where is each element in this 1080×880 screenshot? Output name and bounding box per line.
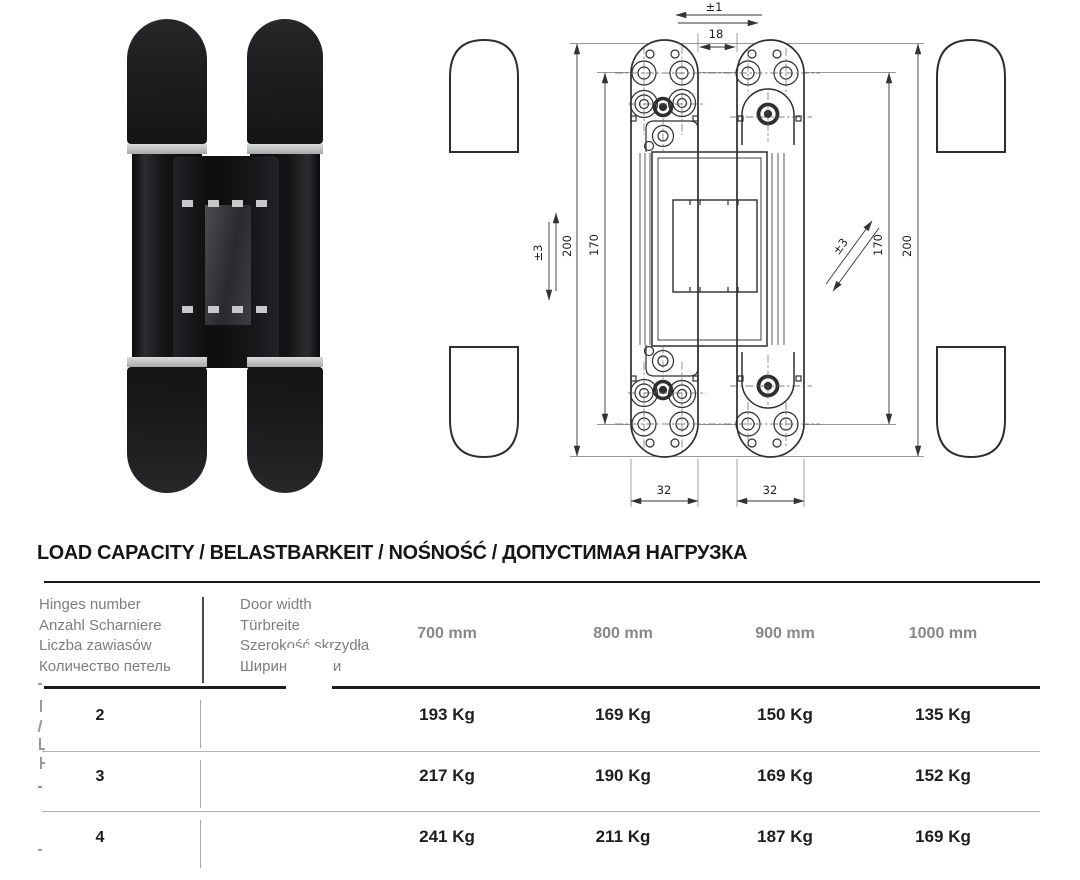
capacity-cell: 152 Kg <box>873 766 1013 786</box>
width-column-700: 700 mm <box>377 625 517 643</box>
dim-label-lateral-adjustment: ±1 <box>706 0 723 14</box>
clipped-text-fragment <box>38 720 43 732</box>
row-separator <box>42 811 1040 812</box>
hinges-count: 2 <box>40 707 160 725</box>
mounting-strip <box>127 144 207 154</box>
mounting-strip <box>127 357 207 367</box>
dim-label-vertical-adjustment: ±3 <box>531 245 545 262</box>
white-occlusion-box <box>286 648 332 704</box>
header-column-divider <box>202 597 204 683</box>
hinge-cap-top-left <box>127 19 207 144</box>
width-column-900: 900 mm <box>715 625 855 643</box>
mounting-strip <box>247 357 323 367</box>
capacity-cell: 187 Kg <box>715 827 855 847</box>
header-rule <box>44 686 1040 689</box>
hinge-cap-bottom-left <box>127 367 207 493</box>
clipped-text-fragment <box>38 683 42 685</box>
capacity-cell: 217 Kg <box>377 766 517 786</box>
capacity-cell: 135 Kg <box>873 705 1013 725</box>
row-divider <box>200 700 201 748</box>
capacity-cell: 150 Kg <box>715 705 855 725</box>
capacity-cell: 211 Kg <box>553 827 693 847</box>
hinges-number-header: Hinges number Anzahl Scharniere Liczba z… <box>39 595 171 677</box>
clipped-text-fragment <box>38 849 42 851</box>
clipped-text-fragment <box>40 700 42 712</box>
capacity-cell: 169 Kg <box>553 705 693 725</box>
title-rule <box>44 581 1040 583</box>
dim-label-right-total-height: 200 <box>900 235 914 257</box>
dim-label-left-plate-width: 32 <box>657 483 672 497</box>
product-photo <box>115 10 335 494</box>
capacity-cell: 169 Kg <box>715 766 855 786</box>
capacity-cell: 190 Kg <box>553 766 693 786</box>
hinge-cap-top-right <box>247 19 323 144</box>
clipped-text-fragment <box>42 762 45 764</box>
row-divider <box>200 820 201 868</box>
hinges-count: 3 <box>40 768 160 786</box>
capacity-cell: 169 Kg <box>873 827 1013 847</box>
dim-label-left-total-height: 200 <box>560 235 574 257</box>
mounting-strip <box>247 144 323 154</box>
hinge-cap-bottom-right <box>247 367 323 493</box>
load-capacity-section: LOAD CAPACITY / BELASTBARKEIT / NOŚNOŚĆ … <box>0 535 1080 880</box>
capacity-cell: 241 Kg <box>377 827 517 847</box>
dim-label-right-screw-spacing: 170 <box>871 234 885 256</box>
dim-label-left-screw-spacing: 170 <box>587 234 601 256</box>
row-separator <box>42 751 1040 752</box>
row-divider <box>200 760 201 808</box>
technical-drawing: ±1 18 ±3 200 170 ±3 170 200 32 32 <box>430 0 1042 535</box>
top-section: ±1 18 ±3 200 170 ±3 170 200 32 32 <box>0 0 1080 535</box>
clipped-text-fragment <box>38 786 42 788</box>
width-column-1000: 1000 mm <box>873 625 1013 643</box>
dim-label-right-plate-width: 32 <box>763 483 778 497</box>
width-column-800: 800 mm <box>553 625 693 643</box>
clipped-text-fragment <box>39 748 45 750</box>
capacity-cell: 193 Kg <box>377 705 517 725</box>
dim-label-gap-width: 18 <box>709 27 724 41</box>
hinge-datasheet-page: { "drawing": { "dim_labels": { "lateral_… <box>0 0 1080 880</box>
section-title: LOAD CAPACITY / BELASTBARKEIT / NOŚNOŚĆ … <box>37 541 747 565</box>
dimension-lines <box>549 15 918 501</box>
hinges-count: 4 <box>40 829 160 847</box>
